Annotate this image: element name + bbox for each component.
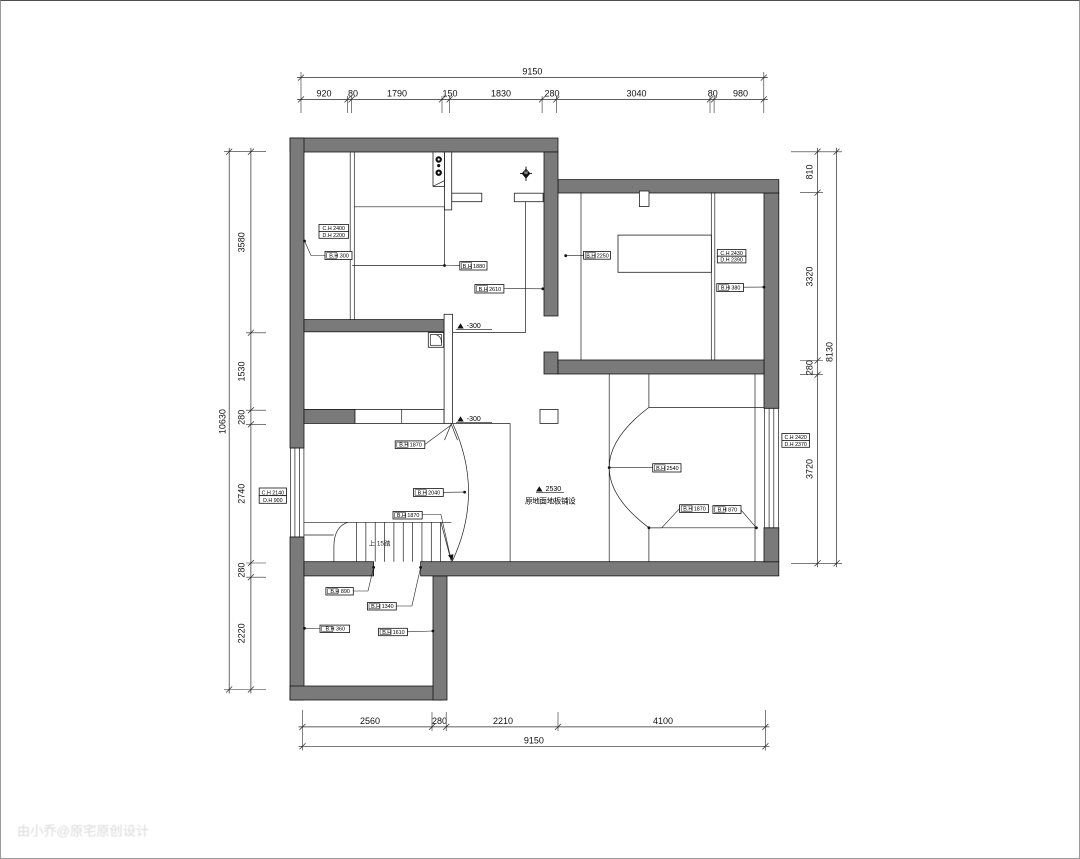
svg-text:B.H 2040: B.H 2040 — [418, 490, 440, 496]
svg-text:B.H 380: B.H 380 — [721, 285, 740, 291]
svg-text:B.H 2540: B.H 2540 — [656, 466, 678, 472]
svg-text:B.H 2250: B.H 2250 — [586, 253, 608, 259]
svg-text:4100: 4100 — [653, 715, 673, 725]
svg-text:80: 80 — [348, 88, 358, 98]
svg-text:920: 920 — [316, 88, 331, 98]
svg-text:原地面地板铺设: 原地面地板铺设 — [525, 495, 576, 505]
svg-text:-300: -300 — [467, 415, 481, 422]
svg-text:9150: 9150 — [524, 735, 544, 745]
svg-text:280: 280 — [236, 409, 246, 424]
svg-text:280: 280 — [236, 562, 246, 577]
svg-text:280: 280 — [804, 360, 814, 375]
svg-text:B.H 1870: B.H 1870 — [397, 513, 419, 519]
svg-text:B.H 1870: B.H 1870 — [683, 506, 705, 512]
svg-text:D.H 2370: D.H 2370 — [785, 441, 807, 447]
svg-text:B.H 1340: B.H 1340 — [371, 604, 393, 610]
svg-text:3320: 3320 — [804, 266, 814, 286]
svg-text:B.H 890: B.H 890 — [330, 589, 349, 595]
svg-text:-300: -300 — [467, 322, 481, 329]
svg-text:2210: 2210 — [493, 715, 513, 725]
svg-text:280: 280 — [432, 715, 447, 725]
svg-text:2560: 2560 — [360, 715, 380, 725]
svg-text:1790: 1790 — [387, 88, 407, 98]
svg-text:150: 150 — [442, 88, 457, 98]
svg-text:80: 80 — [708, 88, 718, 98]
svg-text:810: 810 — [804, 164, 814, 179]
svg-text:B.H 1870: B.H 1870 — [399, 442, 421, 448]
svg-text:由小乔@原宅原创设计: 由小乔@原宅原创设计 — [17, 823, 149, 838]
svg-text:B.H 360: B.H 360 — [326, 626, 345, 632]
svg-text:B.H 1880: B.H 1880 — [463, 264, 485, 270]
svg-text:B.H 870: B.H 870 — [718, 507, 737, 513]
svg-text:C.H 2420: C.H 2420 — [785, 435, 807, 441]
svg-text:280: 280 — [544, 88, 559, 98]
svg-text:D.H 2390: D.H 2390 — [720, 257, 742, 263]
svg-text:2220: 2220 — [236, 623, 246, 643]
svg-text:980: 980 — [733, 88, 748, 98]
svg-text:C.H 2400: C.H 2400 — [323, 226, 345, 232]
svg-text:B.H 300: B.H 300 — [329, 253, 348, 259]
svg-text:1830: 1830 — [491, 88, 511, 98]
svg-text:D.H 2200: D.H 2200 — [323, 232, 345, 238]
svg-text:3720: 3720 — [804, 458, 814, 478]
svg-text:B.H 2610: B.H 2610 — [479, 287, 501, 293]
svg-text:9150: 9150 — [522, 66, 542, 76]
svg-text:上 15踏: 上 15踏 — [369, 538, 391, 547]
svg-text:10630: 10630 — [218, 409, 228, 434]
svg-text:3580: 3580 — [236, 232, 246, 252]
svg-text:C.H 2430: C.H 2430 — [720, 250, 742, 256]
svg-text:B.H 1610: B.H 1610 — [382, 629, 404, 635]
svg-text:C.H 2140: C.H 2140 — [262, 490, 284, 496]
svg-text:1530: 1530 — [236, 361, 246, 381]
svg-text:2740: 2740 — [236, 483, 246, 503]
svg-text:8130: 8130 — [825, 341, 835, 361]
svg-text:D.H 900: D.H 900 — [263, 497, 282, 503]
svg-text:2530: 2530 — [546, 485, 562, 492]
svg-text:3040: 3040 — [626, 88, 646, 98]
